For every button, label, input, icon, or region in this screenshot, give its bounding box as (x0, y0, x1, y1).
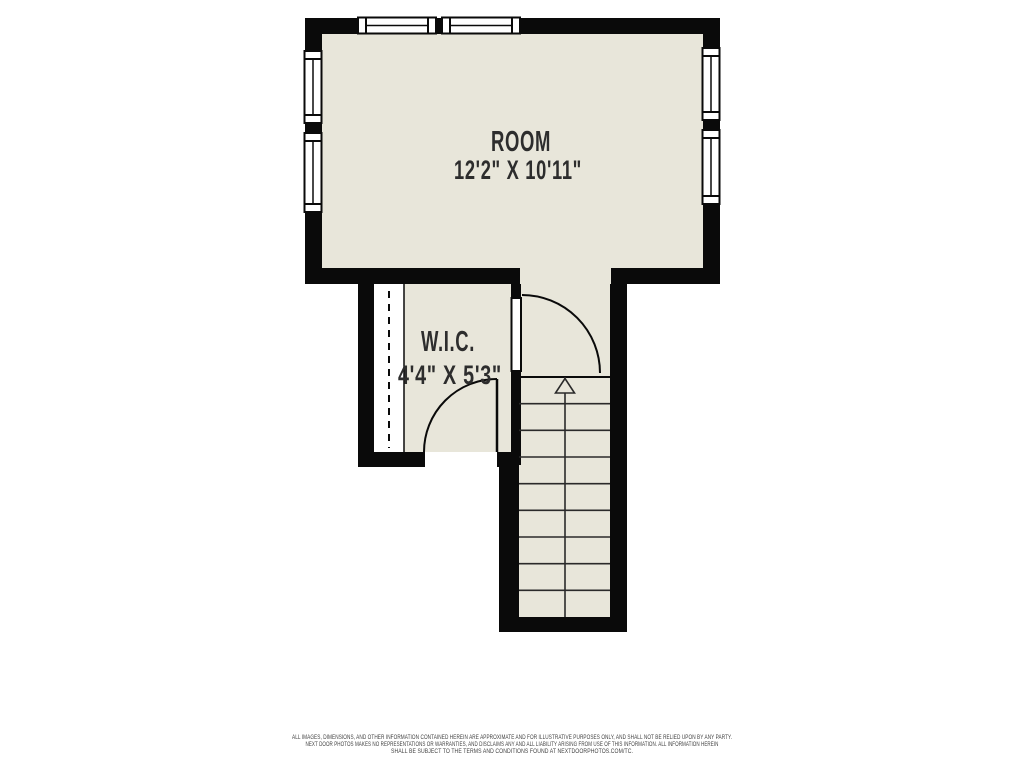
window-icon (703, 130, 720, 204)
stair-left-wall (499, 452, 519, 632)
disclaimer-line-3: SHALL BE SUBJECT TO THE TERMS AND CONDIT… (391, 749, 633, 755)
passage-floor (520, 268, 611, 284)
disclaimer-line-2: NEXT DOOR PHOTOS MAKES NO REPRESENTATION… (306, 742, 719, 748)
room-name-label: ROOM (491, 126, 551, 158)
room-bottom-wall-right (611, 268, 720, 284)
wic-dimensions-label: 4'4" X 5'3" (398, 360, 502, 390)
window-icon (703, 48, 720, 120)
window-icon (305, 133, 322, 212)
wic-name-label: W.I.C. (421, 326, 475, 358)
window-icon (442, 18, 520, 34)
stair-bottom-wall (499, 617, 627, 632)
room-dimensions-label: 12'2" X 10'11" (454, 155, 582, 185)
wic-right-wall-lower (511, 371, 521, 465)
door-panel (512, 298, 522, 371)
room-bottom-wall-left (305, 268, 520, 284)
window-icon (305, 51, 322, 123)
stair-right-wall (610, 284, 627, 632)
floor-plan-page: ROOM 12'2" X 10'11" W.I.C. 4'4" X 5'3" A… (0, 0, 1024, 768)
floor-plan-canvas: ROOM 12'2" X 10'11" W.I.C. 4'4" X 5'3" A… (0, 0, 1024, 768)
disclaimer: ALL IMAGES, DIMENSIONS, AND OTHER INFORM… (292, 735, 732, 755)
wic-left-wall (358, 284, 374, 467)
wic-bottom-wall-left (358, 452, 425, 467)
window-icon (358, 18, 436, 34)
wic-right-wall-upper (511, 284, 521, 298)
disclaimer-line-1: ALL IMAGES, DIMENSIONS, AND OTHER INFORM… (292, 735, 732, 741)
